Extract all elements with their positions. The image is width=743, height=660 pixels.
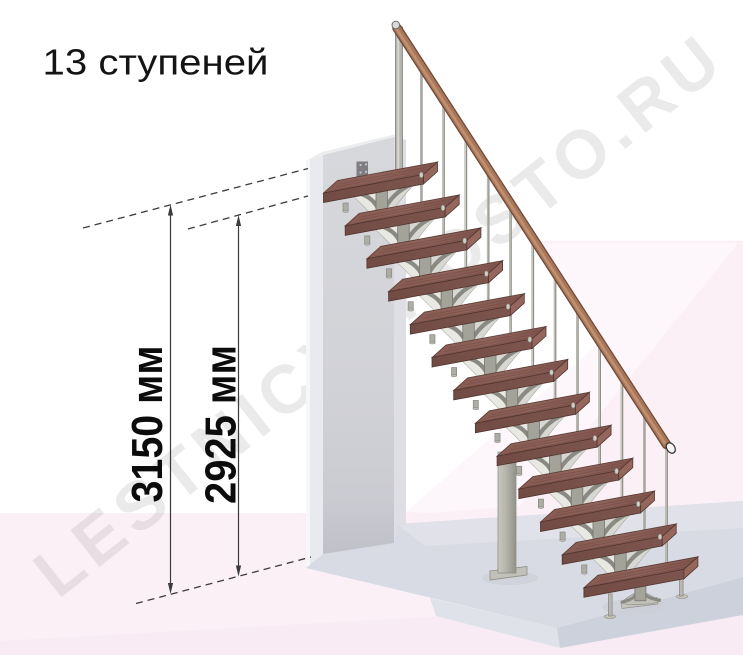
svg-text:13 ступеней: 13 ступеней (43, 42, 269, 83)
svg-text:2925 мм: 2925 мм (197, 345, 246, 504)
svg-text:3150 мм: 3150 мм (123, 346, 172, 503)
